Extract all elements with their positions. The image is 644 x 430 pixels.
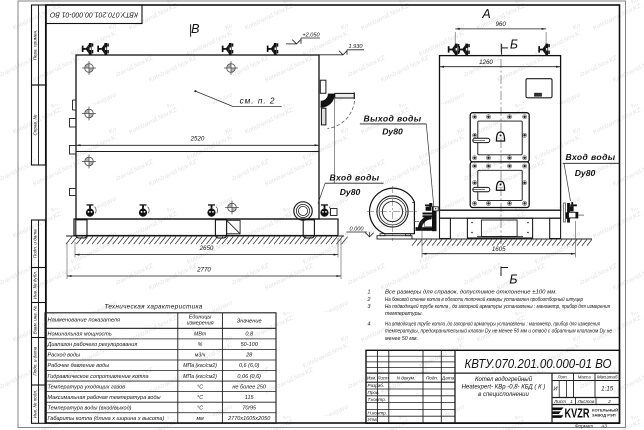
svg-text:в специсполнении: в специсполнении — [478, 392, 529, 398]
svg-text:менее 50 мм.: менее 50 мм. — [385, 336, 418, 342]
svg-text:1260: 1260 — [479, 59, 493, 66]
svg-text:А: А — [481, 7, 490, 21]
svg-text:2650: 2650 — [199, 245, 214, 252]
svg-text:N докум.: N докум. — [397, 376, 416, 381]
svg-text:температуры, предохранительный: температуры, предохранительный клапан Dу… — [385, 328, 612, 335]
svg-text:мм: мм — [197, 416, 205, 422]
svg-text:Лист: Лист — [553, 399, 566, 404]
svg-text:Листов: Листов — [577, 399, 595, 404]
svg-text:Перв. примен.: Перв. примен. — [33, 30, 38, 61]
svg-text:Наименование показателя: Наименование показателя — [48, 318, 121, 324]
svg-text:0,06 (0,6): 0,06 (0,6) — [237, 374, 261, 380]
svg-text:960: 960 — [495, 21, 506, 28]
svg-text:1605: 1605 — [492, 246, 506, 253]
svg-text:Техническая характеристика: Техническая характеристика — [104, 304, 202, 311]
svg-text:28: 28 — [245, 353, 253, 359]
svg-text:Dy80: Dy80 — [340, 187, 361, 197]
svg-text:Изм.: Изм. — [367, 376, 376, 381]
svg-text:А3: А3 — [600, 423, 607, 428]
svg-text:В: В — [191, 22, 199, 36]
svg-text:не более 250: не более 250 — [232, 384, 267, 390]
svg-text:МВт: МВт — [194, 332, 207, 338]
svg-text:КВТУ.070.201.00.000-01 ВО: КВТУ.070.201.00.000-01 ВО — [465, 356, 612, 371]
svg-text:1: 1 — [570, 399, 573, 404]
svg-text:Котел водогрейный: Котел водогрейный — [475, 376, 533, 383]
svg-text:KVZR: KVZR — [565, 406, 590, 420]
svg-text:Диапазон рабочего регулировани: Диапазон рабочего регулирования — [47, 342, 138, 348]
svg-text:115: 115 — [245, 395, 255, 401]
svg-text:На боковой стенке котла в обла: На боковой стенке котла в области топочн… — [385, 296, 583, 303]
svg-text:Утв.: Утв. — [368, 417, 378, 422]
svg-text:Справ. №: Справ. № — [33, 115, 38, 136]
svg-text:1:15: 1:15 — [601, 386, 614, 393]
svg-text:0.000: 0.000 — [350, 226, 365, 232]
svg-text:Heatexpert- КВр -0,8- КБД ( К: Heatexpert- КВр -0,8- КБД ( К ) — [462, 385, 546, 391]
svg-text:Масса: Масса — [578, 375, 592, 380]
svg-text:Номинальная мощность: Номинальная мощность — [48, 332, 112, 338]
svg-text:Дата: Дата — [441, 376, 455, 381]
svg-text:Расход воды: Расход воды — [48, 353, 81, 359]
svg-text:Вход воды: Вход воды — [565, 152, 615, 162]
svg-text:Максимальная рабочая температу: Максимальная рабочая температура воды — [48, 395, 161, 401]
svg-text:Значение: Значение — [237, 319, 262, 325]
svg-text:Б: Б — [510, 38, 518, 52]
svg-text:Т.контр.: Т.контр. — [368, 397, 387, 402]
svg-text:°С: °С — [197, 405, 203, 411]
svg-text:2: 2 — [367, 297, 371, 303]
svg-text:2: 2 — [607, 399, 611, 404]
svg-text:Подп. и дата: Подп. и дата — [33, 229, 38, 258]
svg-text:МПа (кгс/см2): МПа (кгс/см2) — [183, 363, 217, 369]
svg-text:Габариты котла (длина х ширина: Габариты котла (длина х ширина х высота) — [48, 416, 165, 422]
svg-text:Инв. № подл.: Инв. № подл. — [33, 390, 38, 419]
svg-text:температуры.: температуры. — [385, 311, 423, 317]
svg-text:%: % — [198, 342, 203, 348]
svg-text:Взам. инв. №: Взам. инв. № — [33, 306, 38, 334]
svg-text:Лист: Лист — [377, 376, 389, 381]
svg-text:Инв. № дубл.: Инв. № дубл. — [33, 271, 38, 299]
svg-text:1: 1 — [368, 290, 371, 296]
svg-text:+2.050: +2.050 — [302, 32, 320, 38]
svg-text:Температура воды (вход/выход): Температура воды (вход/выход) — [48, 405, 132, 411]
svg-text:4: 4 — [368, 321, 371, 327]
svg-text:70/95: 70/95 — [242, 405, 257, 411]
svg-text:Температура уходящих газов: Температура уходящих газов — [48, 384, 126, 390]
svg-text:Dy80: Dy80 — [575, 168, 596, 178]
svg-text:0,6 (6,0): 0,6 (6,0) — [239, 363, 260, 369]
svg-text:Вход воды: Вход воды — [329, 173, 379, 183]
svg-text:м3/ч: м3/ч — [195, 353, 206, 359]
svg-text:см. п. 2: см. п. 2 — [240, 97, 276, 106]
svg-text:Пров.: Пров. — [368, 390, 380, 395]
svg-text:Н.контр.: Н.контр. — [368, 410, 387, 415]
svg-text:ЗАВОД РЭП: ЗАВОД РЭП — [592, 413, 616, 418]
svg-text:3: 3 — [368, 304, 371, 310]
svg-text:°С: °С — [197, 384, 203, 390]
svg-text:2770х1605х2050: 2770х1605х2050 — [227, 416, 271, 422]
svg-text:Гидравлическое сопротивление к: Гидравлическое сопротивление котла — [48, 374, 149, 380]
svg-text:0,8: 0,8 — [245, 332, 254, 338]
svg-text:°С: °С — [197, 395, 203, 401]
svg-text:Б: Б — [509, 273, 517, 287]
svg-text:измерения: измерения — [187, 321, 214, 327]
svg-text:2770: 2770 — [196, 266, 211, 273]
svg-text:Формат: Формат — [575, 423, 593, 428]
svg-text:МПа (кгс/см2): МПа (кгс/см2) — [183, 374, 217, 380]
svg-text:Подп. и дата: Подп. и дата — [33, 346, 38, 375]
svg-text:50-100: 50-100 — [241, 342, 259, 348]
svg-text:Масштаб: Масштаб — [597, 375, 618, 380]
svg-text:КВТУ.070.201.00.000-01 ВО: КВТУ.070.201.00.000-01 ВО — [49, 10, 138, 17]
svg-text:2520: 2520 — [190, 136, 205, 143]
svg-text:Dy80: Dy80 — [382, 126, 403, 136]
svg-text:На отводящей трубе котла ,до з: На отводящей трубе котла ,до запорной ар… — [385, 320, 600, 327]
svg-text:Все размеры для справок, допус: Все размеры для справок, допустимое откл… — [385, 290, 557, 296]
svg-text:Рабочее давление воды: Рабочее давление воды — [48, 363, 110, 369]
svg-text:На подводящей трубе котла ,: На подводящей трубе котла , до запорной … — [385, 303, 610, 310]
svg-text:Подп.: Подп. — [426, 376, 438, 381]
svg-text:Разраб.: Разраб. — [368, 383, 385, 388]
svg-text:Выход воды: Выход воды — [364, 113, 422, 123]
svg-text:1.930: 1.930 — [349, 44, 364, 50]
svg-text:Лит.: Лит. — [557, 375, 568, 380]
